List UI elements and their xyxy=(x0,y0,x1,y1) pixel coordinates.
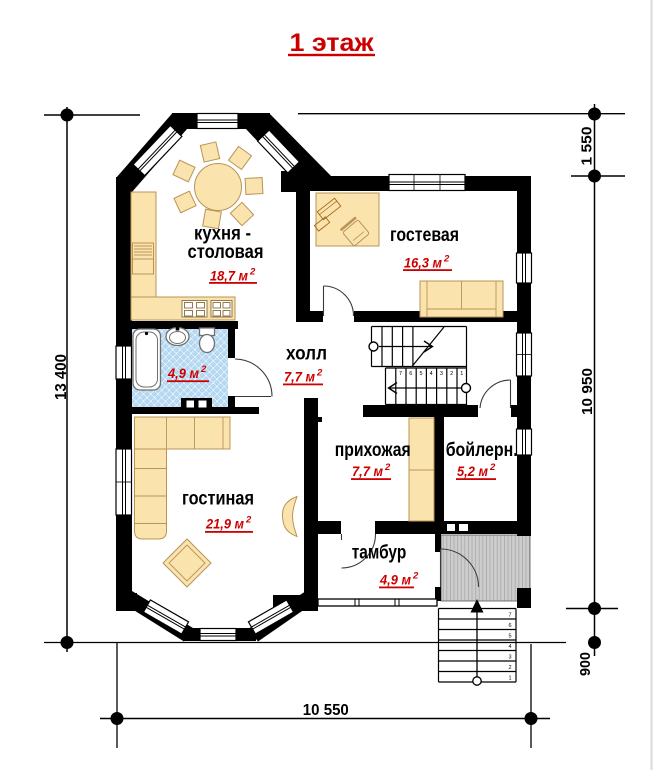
svg-text:13 400: 13 400 xyxy=(53,354,70,400)
svg-text:2: 2 xyxy=(245,515,252,526)
svg-text:4: 4 xyxy=(430,371,433,377)
svg-text:3: 3 xyxy=(440,371,443,377)
svg-text:2: 2 xyxy=(316,368,323,379)
svg-text:16,3 м: 16,3 м xyxy=(404,255,443,271)
svg-text:900: 900 xyxy=(577,652,594,676)
svg-text:2: 2 xyxy=(443,254,450,265)
svg-text:4: 4 xyxy=(508,644,511,650)
svg-text:21,9 м: 21,9 м xyxy=(205,516,244,532)
svg-text:7: 7 xyxy=(399,371,402,377)
svg-text:5: 5 xyxy=(419,371,422,377)
svg-text:3: 3 xyxy=(508,655,511,661)
svg-text:столовая: столовая xyxy=(188,242,264,263)
svg-text:18,7 м: 18,7 м xyxy=(210,268,249,284)
svg-text:4,9 м: 4,9 м xyxy=(167,365,200,381)
svg-text:2: 2 xyxy=(249,267,256,278)
svg-text:бойлерн.: бойлерн. xyxy=(446,440,518,461)
svg-text:прихожая: прихожая xyxy=(335,440,411,461)
svg-text:2: 2 xyxy=(412,571,419,582)
svg-text:6: 6 xyxy=(409,371,412,377)
svg-text:1 этаж: 1 этаж xyxy=(290,29,374,57)
svg-text:2: 2 xyxy=(450,371,453,377)
svg-text:1: 1 xyxy=(460,371,463,377)
svg-text:тамбур: тамбур xyxy=(352,543,407,564)
svg-text:7: 7 xyxy=(508,613,511,619)
svg-text:1 550: 1 550 xyxy=(579,127,596,166)
svg-text:5,2 м: 5,2 м xyxy=(457,463,489,479)
svg-text:гостиная: гостиная xyxy=(182,489,254,510)
svg-text:холл: холл xyxy=(286,344,327,365)
svg-text:10 950: 10 950 xyxy=(579,368,596,415)
svg-text:4,9 м: 4,9 м xyxy=(379,572,412,588)
svg-text:6: 6 xyxy=(508,623,511,629)
svg-text:гостевая: гостевая xyxy=(390,225,459,246)
svg-text:1: 1 xyxy=(508,676,511,682)
svg-text:2: 2 xyxy=(508,665,511,671)
svg-text:7,7 м: 7,7 м xyxy=(284,369,316,385)
svg-text:7,7 м: 7,7 м xyxy=(352,463,384,479)
svg-text:2: 2 xyxy=(384,462,391,473)
svg-text:10 550: 10 550 xyxy=(303,702,349,719)
svg-text:5: 5 xyxy=(508,634,511,640)
svg-text:2: 2 xyxy=(200,364,207,375)
svg-text:2: 2 xyxy=(489,462,496,473)
